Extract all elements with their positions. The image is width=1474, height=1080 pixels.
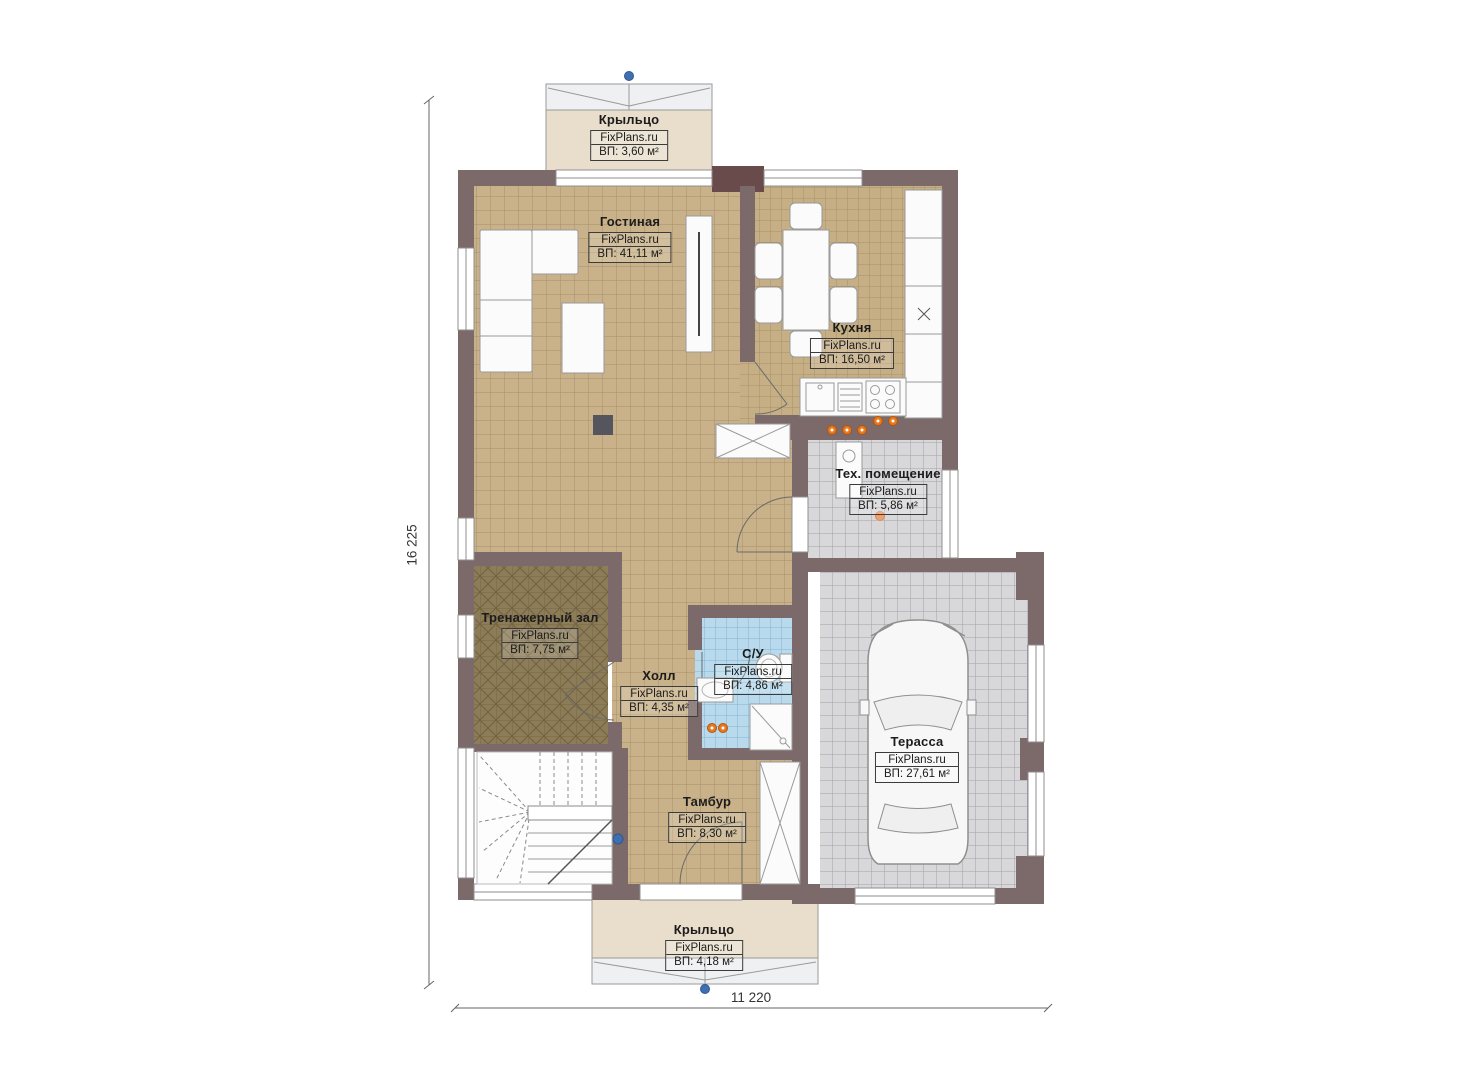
room-name: С/У [714,646,792,661]
room-brand: FixPlans.ru [621,687,697,701]
room-name: Тренажерный зал [481,610,598,625]
room-info-box: FixPlans.ru ВП: 7,75 м² [501,628,579,659]
room-label-tambur: Тамбур FixPlans.ru ВП: 8,30 м² [668,794,746,843]
room-area: ВП: 4,35 м² [621,701,697,716]
room-label-living: Гостиная FixPlans.ru ВП: 41,11 м² [588,214,671,263]
room-area: ВП: 41,11 м² [589,247,670,262]
room-name: Тех. помещение [835,466,940,481]
room-brand: FixPlans.ru [811,339,893,353]
room-brand: FixPlans.ru [850,485,926,499]
room-brand: FixPlans.ru [669,813,745,827]
vent-box [716,424,790,458]
room-name: Кухня [810,320,894,335]
room-area: ВП: 16,50 м² [811,353,893,368]
room-name: Холл [620,668,698,683]
room-name: Терасса [875,734,959,749]
stairs [477,752,612,884]
dishwasher [838,383,862,411]
terrace-door-panel [760,762,800,884]
room-area: ВП: 7,75 м² [502,643,578,658]
room-label-porch-bottom: Крыльцо FixPlans.ru ВП: 4,18 м² [665,922,743,971]
room-label-porch-top: Крыльцо FixPlans.ru ВП: 3,60 м² [590,112,668,161]
dimension-line-vertical [424,96,434,989]
floor-plan-drawing [0,0,1474,1080]
room-label-tech: Тех. помещение FixPlans.ru ВП: 5,86 м² [835,466,940,515]
room-label-hall: Холл FixPlans.ru ВП: 4,35 м² [620,668,698,717]
coffee-table [562,303,604,373]
dimension-label-vertical: 16 225 [405,524,420,565]
room-area: ВП: 4,18 м² [666,955,742,970]
room-info-box: FixPlans.ru ВП: 4,35 м² [620,686,698,717]
room-brand: FixPlans.ru [591,131,667,145]
room-info-box: FixPlans.ru ВП: 8,30 м² [668,812,746,843]
room-area: ВП: 27,61 м² [876,767,958,782]
room-brand: FixPlans.ru [715,665,791,679]
room-info-box: FixPlans.ru ВП: 3,60 м² [590,130,668,161]
room-area: ВП: 5,86 м² [850,499,926,514]
room-info-box: FixPlans.ru ВП: 27,61 м² [875,752,959,783]
room-info-box: FixPlans.ru ВП: 16,50 м² [810,338,894,369]
room-brand: FixPlans.ru [666,941,742,955]
room-label-bathroom: С/У FixPlans.ru ВП: 4,86 м² [714,646,792,695]
room-name: Крыльцо [590,112,668,127]
dimension-label-horizontal: 11 220 [731,990,771,1005]
room-name: Тамбур [668,794,746,809]
shower [750,704,792,750]
floor-plan-canvas: Крыльцо FixPlans.ru ВП: 3,60 м² Гостиная… [0,0,1474,1080]
room-area: ВП: 3,60 м² [591,145,667,160]
room-info-box: FixPlans.ru ВП: 5,86 м² [849,484,927,515]
stove [866,381,900,413]
kitchen-sink [806,383,834,411]
room-area: ВП: 8,30 м² [669,827,745,842]
room-name: Крыльцо [665,922,743,937]
column [593,415,613,435]
room-info-box: FixPlans.ru ВП: 41,11 м² [588,232,671,263]
room-brand: FixPlans.ru [502,629,578,643]
room-label-gym: Тренажерный зал FixPlans.ru ВП: 7,75 м² [481,610,598,659]
room-info-box: FixPlans.ru ВП: 4,18 м² [665,940,743,971]
dimension-line-horizontal [451,1004,1052,1012]
room-info-box: FixPlans.ru ВП: 4,86 м² [714,664,792,695]
room-label-kitchen: Кухня FixPlans.ru ВП: 16,50 м² [810,320,894,369]
room-brand: FixPlans.ru [876,753,958,767]
room-area: ВП: 4,86 м² [715,679,791,694]
tv-cabinet [686,216,712,352]
room-label-terrace: Терасса FixPlans.ru ВП: 27,61 м² [875,734,959,783]
room-brand: FixPlans.ru [589,233,670,247]
room-name: Гостиная [588,214,671,229]
